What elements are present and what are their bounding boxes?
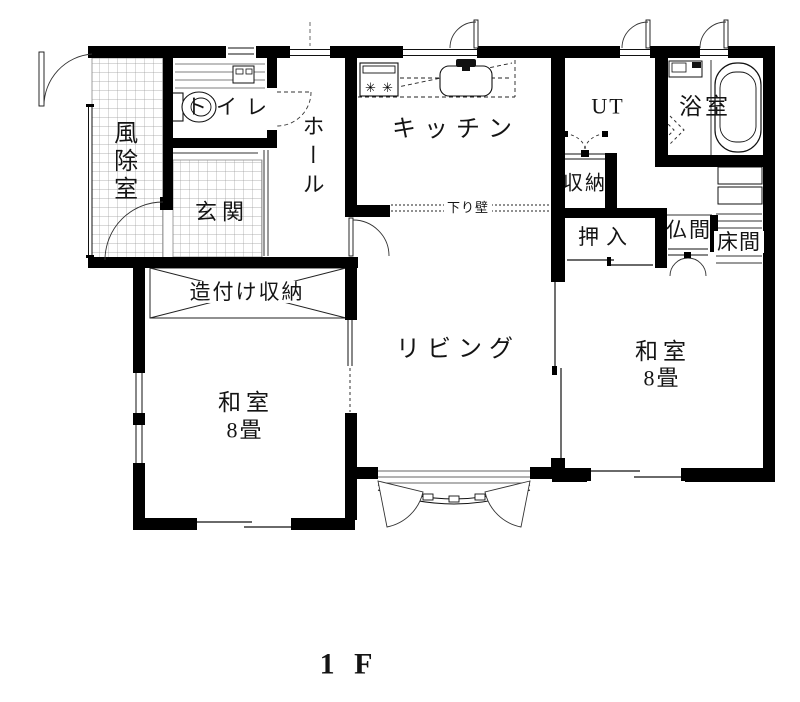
left-washitsu-bottom-window xyxy=(193,518,295,530)
entrance-step-line xyxy=(264,150,268,256)
closet-fusuma xyxy=(567,257,653,266)
burner-icon: ✳ xyxy=(365,80,376,95)
room-size-washitsu-left: 8畳 xyxy=(226,418,263,441)
room-label-utility: UT xyxy=(591,94,624,117)
room-label-kitchen: キッチン xyxy=(392,117,520,142)
laundry-shelves xyxy=(718,167,762,204)
room-label-vestibule: 風除室 xyxy=(109,120,134,204)
room-label-hall: ホール xyxy=(300,115,323,202)
butsuma-double-doors xyxy=(668,249,708,276)
toilet-cistern xyxy=(233,66,254,83)
bathroom-fixtures xyxy=(664,60,762,204)
hall-top-window xyxy=(290,22,330,56)
room-label-built-in-storage: 造付け収納 xyxy=(187,281,308,303)
room-label-entrance: 玄関 xyxy=(195,200,249,223)
storage-double-doors xyxy=(562,131,608,159)
entrance-door xyxy=(39,52,92,106)
toilet-top-window xyxy=(226,44,256,58)
bow-window-right-casement xyxy=(485,481,530,527)
floor-plan-page: ✳ ✳ xyxy=(0,0,800,702)
living-washitsu-fusuma xyxy=(552,282,561,458)
room-label-toilet: トイレ xyxy=(186,96,276,118)
floor-label: 1 F xyxy=(320,648,379,680)
room-label-alcove: 床間 xyxy=(714,231,764,253)
room-label-closet: 押入 xyxy=(578,226,634,248)
kitchen-back-door xyxy=(403,20,478,56)
kitchen-counter: ✳ ✳ xyxy=(358,59,515,97)
room-label-storage: 収納 xyxy=(563,174,607,195)
right-washitsu-bottom-window xyxy=(587,468,685,481)
stove: ✳ ✳ xyxy=(360,63,398,96)
room-label-butsuma: 仏間 xyxy=(666,219,712,241)
left-wall-window-2 xyxy=(133,421,145,467)
room-label-bathroom: 浴室 xyxy=(679,95,731,119)
label-dropped-wall: 下り壁 xyxy=(444,201,492,215)
bathroom-back-door xyxy=(700,20,728,56)
left-washitsu-living-opening xyxy=(348,320,352,412)
room-label-washitsu-left: 和室 xyxy=(218,391,274,415)
burner-icon: ✳ xyxy=(382,80,393,95)
room-label-living: リビング xyxy=(396,337,520,362)
hall-living-door xyxy=(349,218,389,256)
bath-sink xyxy=(669,61,702,77)
bow-window xyxy=(378,471,530,527)
bow-window-left-casement xyxy=(378,481,423,527)
room-label-washitsu-right: 和室 xyxy=(635,340,691,364)
left-wall-window-1 xyxy=(133,369,145,417)
kitchen-sink xyxy=(440,59,492,96)
room-size-washitsu-right: 8畳 xyxy=(643,366,680,389)
utility-back-door xyxy=(620,20,650,56)
